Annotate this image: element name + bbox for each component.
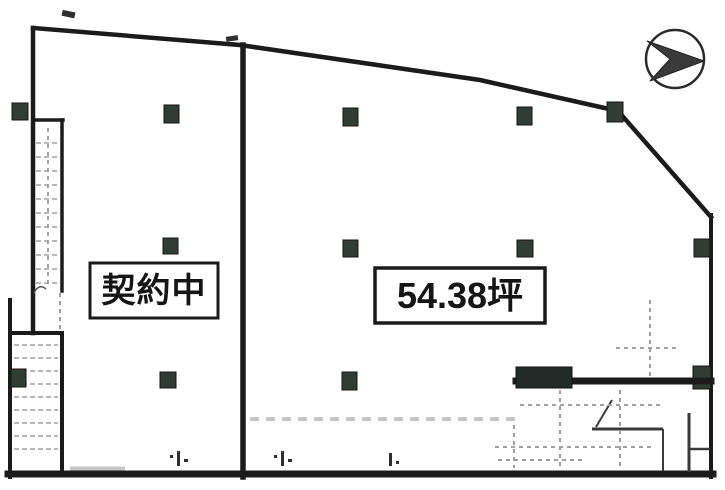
structural-column: [607, 102, 623, 122]
top-wall: [33, 28, 618, 111]
core-block: [516, 367, 572, 388]
contracted-unit-label: 契約中: [102, 272, 207, 310]
diagonal-wall: [618, 111, 711, 217]
structural-column: [517, 240, 533, 257]
area-label: 54.38坪: [397, 275, 523, 316]
scan-tick: [226, 35, 239, 42]
floor-plan-drawing: 契約中 54.38坪: [0, 0, 725, 490]
stairwell-upper-left: [33, 120, 63, 331]
stairwell-lower-left: [10, 333, 62, 475]
area-label-box: 54.38坪: [375, 268, 545, 323]
structural-columns: [11, 102, 711, 390]
service-core: [495, 300, 711, 472]
structural-column: [11, 369, 26, 387]
door-marks: [170, 451, 399, 466]
structural-column: [343, 108, 358, 126]
structural-column: [342, 372, 357, 390]
structural-column: [164, 105, 179, 123]
structural-column: [517, 107, 532, 125]
structural-column: [163, 238, 178, 254]
structural-column: [12, 103, 28, 120]
floor-plan-scan: 契約中 54.38坪: [0, 0, 725, 490]
north-arrow-icon: [646, 30, 704, 88]
contracted-unit-label-box: 契約中: [90, 263, 218, 318]
structural-column: [694, 239, 710, 257]
stair-arrow-curl: [34, 287, 46, 293]
structural-column: [343, 240, 358, 257]
scan-tick: [62, 10, 76, 19]
structural-column: [160, 372, 176, 388]
